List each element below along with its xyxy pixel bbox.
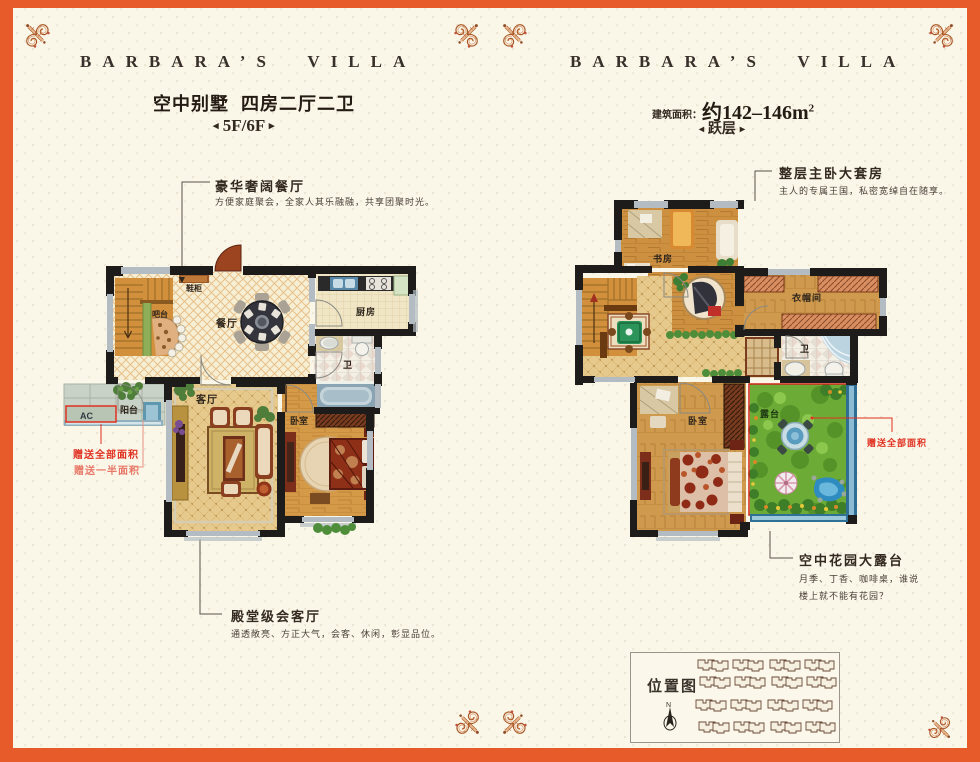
svg-text:阳台: 阳台	[120, 404, 138, 415]
svg-text:吧台: 吧台	[152, 309, 168, 319]
svg-text:卧室: 卧室	[290, 415, 308, 426]
svg-text:餐厅: 餐厅	[215, 317, 238, 330]
svg-text:AC: AC	[80, 411, 93, 421]
svg-text:客厅: 客厅	[195, 393, 218, 406]
svg-text:衣帽间: 衣帽间	[792, 292, 822, 303]
svg-text:书房: 书房	[653, 253, 673, 264]
svg-text:厨房: 厨房	[356, 306, 376, 317]
svg-text:卫: 卫	[343, 360, 352, 370]
svg-text:卧室: 卧室	[688, 415, 708, 426]
svg-text:卫: 卫	[800, 344, 809, 354]
svg-text:露台: 露台	[760, 408, 780, 419]
svg-text:鞋柜: 鞋柜	[186, 283, 202, 293]
